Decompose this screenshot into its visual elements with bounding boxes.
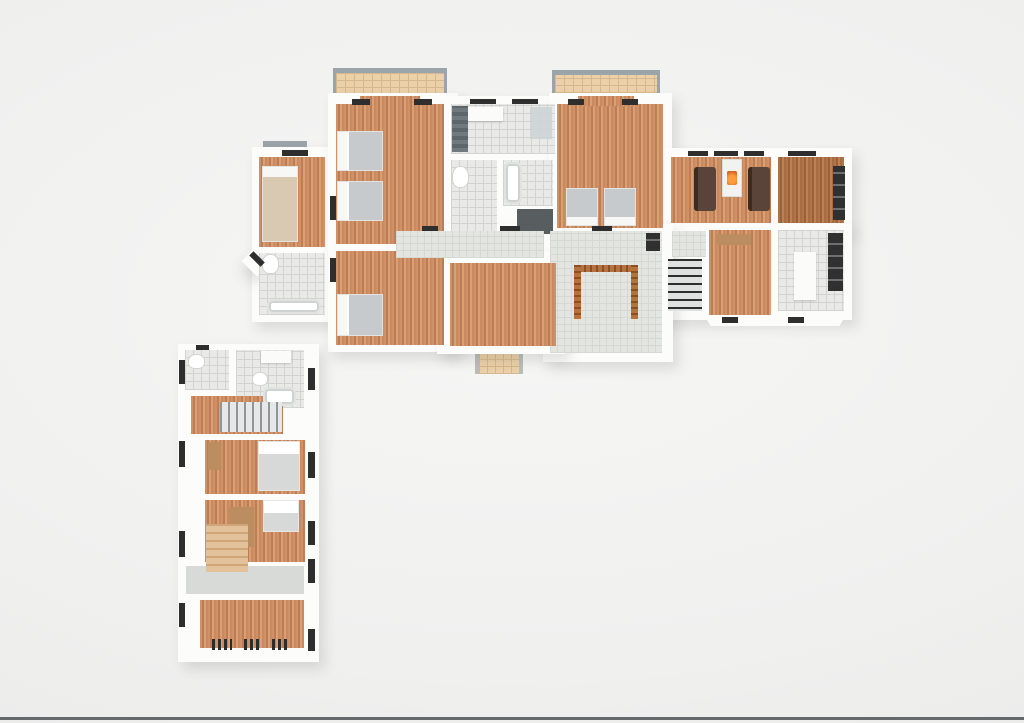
fireplace-fire: [727, 171, 737, 185]
toilet: [263, 255, 278, 273]
door-lintel: [422, 226, 438, 231]
radiator: [212, 639, 232, 650]
room-bedroom-1: [336, 104, 444, 244]
window: [308, 521, 315, 545]
window: [414, 99, 432, 105]
shower: [452, 106, 468, 152]
room-bedroom-6: [450, 263, 556, 346]
bathtub: [504, 162, 522, 204]
window: [179, 441, 185, 467]
window: [622, 99, 638, 105]
vanity-sink: [467, 107, 503, 121]
window: [744, 151, 764, 156]
radiator: [244, 639, 260, 650]
window: [352, 99, 370, 105]
window: [179, 531, 185, 557]
window: [688, 151, 708, 156]
sofa: [748, 167, 770, 211]
room-corridor: [396, 231, 544, 258]
window: [714, 151, 738, 156]
bed: [604, 188, 636, 226]
window: [568, 99, 584, 105]
window: [196, 345, 209, 350]
cabinet: [717, 234, 751, 245]
window: [179, 603, 185, 627]
sofa: [694, 167, 716, 211]
window: [330, 258, 336, 282]
bed: [262, 166, 298, 242]
bed: [337, 131, 383, 171]
room-corridor-right: [672, 231, 706, 257]
window: [308, 559, 315, 583]
hall-closet: [646, 233, 660, 251]
door-lintel: [500, 226, 520, 231]
bed: [337, 294, 383, 336]
kitchen-counter: [794, 252, 816, 300]
window: [308, 452, 315, 478]
floorplan: [0, 0, 1024, 723]
stairs-lower-wing: [206, 524, 248, 572]
bed: [263, 500, 299, 532]
bathtub: [267, 299, 321, 314]
door-lintel: [592, 226, 612, 231]
window: [722, 317, 738, 323]
gallery-balustrade-right: [631, 265, 638, 319]
gallery-balustrade-top: [574, 265, 638, 272]
toilet: [453, 167, 468, 187]
window: [179, 360, 185, 384]
radiator: [272, 639, 290, 650]
bed: [566, 188, 598, 226]
stairs-wing: [220, 402, 282, 432]
window: [308, 368, 315, 390]
window: [308, 629, 315, 651]
sink: [261, 351, 291, 363]
toilet: [253, 373, 267, 385]
window: [788, 151, 816, 156]
bed: [258, 441, 300, 491]
toilet: [189, 355, 204, 368]
wardrobe: [208, 442, 221, 470]
wardrobe: [833, 166, 845, 220]
window: [282, 150, 308, 156]
floor-plan-page: [0, 0, 1024, 723]
window: [470, 99, 496, 104]
stairs-main: [668, 259, 702, 311]
window: [788, 317, 804, 323]
gallery-balustrade-left: [574, 265, 581, 319]
shower-screen: [530, 107, 552, 139]
kitchen-units: [828, 233, 843, 291]
bed: [337, 181, 383, 221]
page-bottom-border: [0, 717, 1024, 720]
window: [512, 99, 538, 104]
window: [330, 196, 336, 220]
